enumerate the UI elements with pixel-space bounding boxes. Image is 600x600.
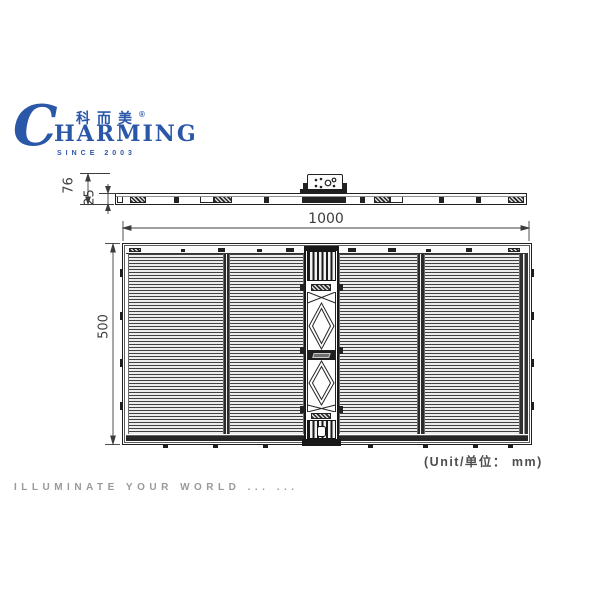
mounting-nub (300, 284, 305, 291)
fastener-block (214, 196, 232, 203)
truss-joint-block (311, 413, 331, 419)
fastener-block (508, 248, 520, 252)
fastener-block (174, 196, 179, 203)
brand-logo: C 科而美® HARMING SINCE 2003 (16, 104, 166, 164)
mounting-tab (531, 359, 534, 367)
mounting-tab (531, 269, 534, 277)
led-strip-section-3 (339, 254, 418, 434)
mounting-tab (120, 312, 123, 320)
footer-tagline: ILLUMINATE YOUR WORLD ... ... (14, 482, 299, 493)
fastener-block (508, 196, 524, 203)
fastener-block (426, 249, 431, 252)
registered-trademark-icon: ® (139, 110, 145, 119)
mounting-nub (338, 284, 343, 291)
led-strip-section-2 (229, 254, 304, 434)
logo-initial: C (13, 98, 58, 154)
fastener-block (200, 196, 214, 203)
logo-latin-name: HARMING (54, 121, 198, 147)
led-strip-section-1 (128, 254, 224, 434)
product-drawing-page: C 科而美® HARMING SINCE 2003 (0, 0, 600, 600)
fastener-block (466, 248, 472, 252)
truss-grill-top (307, 251, 336, 281)
side-profile-bar (115, 193, 527, 205)
panel-foot (163, 444, 168, 448)
mounting-tab (120, 402, 123, 410)
mounting-tab (531, 402, 534, 410)
mounting-tab (531, 312, 534, 320)
panel-foot (473, 444, 478, 448)
center-mount-block (302, 196, 346, 203)
mounting-tab (120, 269, 123, 277)
fastener-block (348, 248, 356, 252)
fastener-block (388, 248, 396, 252)
panel-foot (213, 444, 218, 448)
truss-diamond-1 (306, 292, 337, 350)
panel-foot (423, 444, 428, 448)
panel-foot (263, 444, 268, 448)
fastener-block (476, 196, 481, 203)
truss-joint-block (311, 284, 331, 291)
dim-height-label: 500 (98, 307, 111, 347)
fastener-block (439, 196, 444, 203)
center-truss-column (304, 246, 339, 444)
fastener-block (286, 248, 294, 252)
panel-foot (368, 444, 373, 448)
logo-since-line: SINCE 2003 (57, 150, 136, 157)
mounting-nub (338, 406, 343, 413)
truss-diamond-2 (306, 360, 337, 412)
truss-brand-badge (307, 350, 336, 360)
fastener-block (374, 196, 390, 203)
led-strip-section-4 (424, 254, 520, 434)
badge-mark (312, 353, 330, 358)
dim-thickness-label: 25 (84, 185, 97, 211)
front-view-drawing (122, 243, 532, 445)
truss-bottom-connector (302, 439, 341, 446)
fastener-block (360, 196, 365, 203)
fastener-block (130, 196, 146, 203)
mounting-nub (338, 347, 343, 354)
dim-width-label: 1000 (300, 211, 352, 227)
fastener-block (181, 249, 185, 252)
fastener-block (264, 196, 269, 203)
mounting-nub (300, 347, 305, 354)
mounting-nub (300, 406, 305, 413)
fastener-block (390, 196, 403, 203)
end-cap (117, 196, 123, 203)
fastener-block (218, 248, 225, 252)
panel-right-edge-bar (520, 254, 528, 434)
dim-depth-label: 76 (63, 173, 76, 199)
truss-handle (317, 426, 326, 437)
fastener-block (257, 249, 262, 252)
unit-note: (Unit/单位： mm) (424, 451, 543, 470)
panel-foot (508, 444, 513, 448)
mounting-tab (120, 359, 123, 367)
fastener-block (129, 248, 141, 252)
